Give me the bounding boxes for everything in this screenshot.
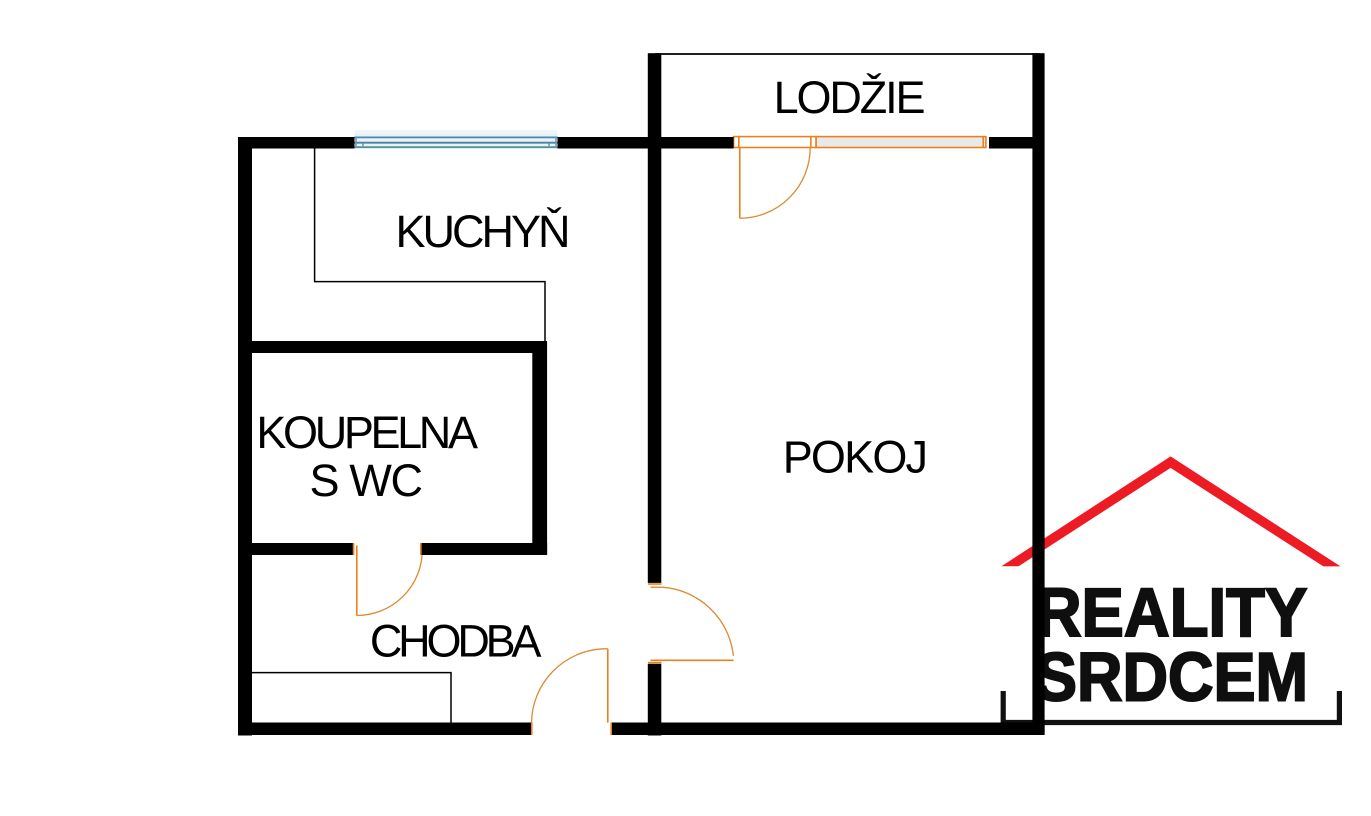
svg-text:CHODBA: CHODBA: [370, 615, 542, 666]
svg-text:SRDCEM: SRDCEM: [1035, 638, 1308, 715]
svg-text:KUCHYŇ: KUCHYŇ: [395, 206, 567, 257]
svg-text:KOUPELNA: KOUPELNA: [256, 407, 478, 458]
svg-text:LODŽIE: LODŽIE: [774, 72, 925, 123]
svg-text:POKOJ: POKOJ: [783, 431, 927, 482]
svg-text:S WC: S WC: [310, 455, 422, 506]
